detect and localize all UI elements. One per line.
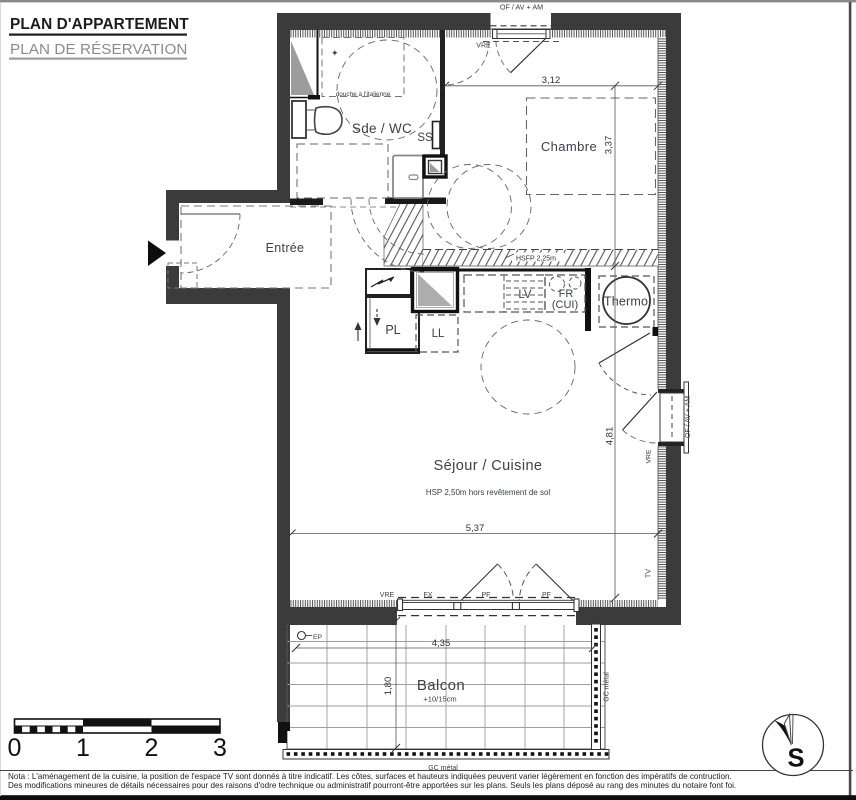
svg-text:HSFP 2,25m: HSFP 2,25m	[516, 256, 556, 263]
svg-text:Sde / WC: Sde / WC	[352, 121, 412, 136]
svg-text:1,80: 1,80	[383, 677, 394, 696]
svg-text:PF: PF	[542, 592, 551, 599]
svg-text:PF: PF	[482, 592, 491, 599]
svg-text:GC métal: GC métal	[604, 672, 611, 702]
svg-text:5,37: 5,37	[466, 523, 485, 534]
svg-text:OF / AV + AM: OF / AV + AM	[500, 3, 543, 12]
svg-text:4,81: 4,81	[605, 427, 616, 446]
svg-text:1: 1	[76, 734, 90, 762]
svg-text:VRE: VRE	[646, 449, 653, 463]
svg-text:3: 3	[213, 734, 227, 762]
svg-text:SS: SS	[417, 132, 433, 144]
svg-text:Balcon: Balcon	[417, 677, 465, 694]
svg-text:+10/15cm: +10/15cm	[423, 695, 456, 704]
svg-text:Des modifications mineures de: Des modifications mineures de détails né…	[8, 781, 736, 790]
svg-text:2: 2	[145, 734, 159, 762]
svg-text:Nota : L'aménagement de la cui: Nota : L'aménagement de la cuisine, la p…	[8, 772, 732, 781]
svg-text:0: 0	[8, 734, 22, 762]
svg-text:VRE: VRE	[380, 592, 395, 599]
svg-text:EP: EP	[313, 634, 323, 641]
svg-text:PL: PL	[385, 323, 400, 337]
svg-text:OF / AV + AM: OF / AV + AM	[685, 396, 692, 438]
svg-text:FX: FX	[424, 592, 433, 599]
svg-text:douche à l'italienne: douche à l'italienne	[336, 91, 391, 98]
svg-text:Chambre: Chambre	[541, 139, 597, 154]
svg-text:3,37: 3,37	[604, 136, 615, 155]
svg-text:HSP 2,50m hors revêtement de s: HSP 2,50m hors revêtement de sol	[426, 488, 551, 497]
svg-text:LL: LL	[432, 328, 445, 340]
svg-text:Séjour / Cuisine: Séjour / Cuisine	[434, 458, 543, 474]
svg-text:LV: LV	[518, 289, 532, 301]
svg-text:(CUI): (CUI)	[552, 299, 578, 311]
svg-text:VRE: VRE	[476, 43, 491, 50]
svg-text:PLAN DE RÉSERVATION: PLAN DE RÉSERVATION	[10, 41, 187, 58]
svg-text:Thermo: Thermo	[604, 295, 648, 309]
svg-text:✦: ✦	[331, 48, 339, 58]
svg-text:S: S	[787, 745, 804, 773]
svg-text:4,35: 4,35	[432, 638, 451, 649]
svg-text:TV: TV	[644, 569, 653, 578]
svg-text:PLAN D'APPARTEMENT: PLAN D'APPARTEMENT	[10, 16, 189, 33]
svg-text:3,12: 3,12	[542, 75, 561, 86]
svg-text:Entrée: Entrée	[266, 241, 305, 255]
